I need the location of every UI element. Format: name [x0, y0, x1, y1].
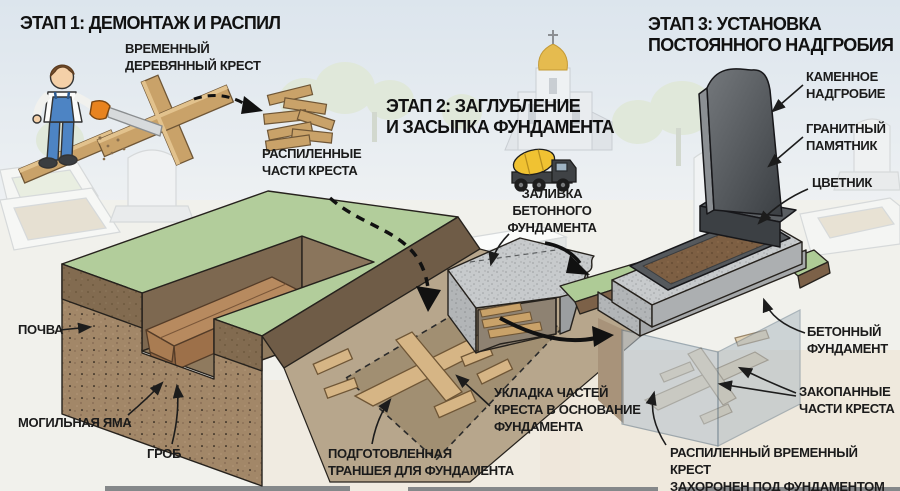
label-trench: ПОДГОТОВЛЕННАЯ ТРАНШЕЯ ДЛЯ ФУНДАМЕНТА — [328, 446, 514, 480]
label-buried-parts: ЗАКОПАННЫЕ ЧАСТИ КРЕСТА — [799, 384, 894, 418]
label-flower-bed: ЦВЕТНИК — [812, 175, 872, 192]
label-concrete-pour: ЗАЛИВКА БЕТОННОГО ФУНДАМЕНТА — [502, 186, 602, 237]
stage1-title: ЭТАП 1: ДЕМОНТАЖ И РАСПИЛ — [20, 13, 280, 34]
label-buried-note: РАСПИЛЕННЫЙ ВРЕМЕННЫЙ КРЕСТ ЗАХОРОНЕН ПО… — [670, 445, 900, 491]
label-laying: УКЛАДКА ЧАСТЕЙ КРЕСТА В ОСНОВАНИЕ ФУНДАМ… — [494, 385, 641, 436]
label-soil: ПОЧВА — [18, 322, 63, 339]
stele — [699, 69, 782, 216]
label-coffin: ГРОБ — [147, 446, 181, 463]
label-foundation: БЕТОННЫЙ ФУНДАМЕНТ — [807, 324, 888, 358]
stage2-title: ЭТАП 2: ЗАГЛУБЛЕНИЕ И ЗАСЫПКА ФУНДАМЕНТА — [386, 96, 614, 138]
label-stone-tombstone: КАМЕННОЕ НАДГРОБИЕ — [806, 69, 885, 103]
infographic-grave-monument-stages: ЭТАП 1: ДЕМОНТАЖ И РАСПИЛ ЭТАП 2: ЗАГЛУБ… — [0, 0, 900, 491]
label-temporary-cross: ВРЕМЕННЫЙ ДЕРЕВЯННЫЙ КРЕСТ — [125, 41, 261, 75]
stage3-title: ЭТАП 3: УСТАНОВКА ПОСТОЯННОГО НАДГРОБИЯ — [648, 14, 893, 56]
label-sawn-parts: РАСПИЛЕННЫЕ ЧАСТИ КРЕСТА — [262, 146, 361, 180]
label-granite-monument: ГРАНИТНЫЙ ПАМЯТНИК — [806, 121, 886, 155]
label-grave-pit: МОГИЛЬНАЯ ЯМА — [18, 415, 132, 432]
